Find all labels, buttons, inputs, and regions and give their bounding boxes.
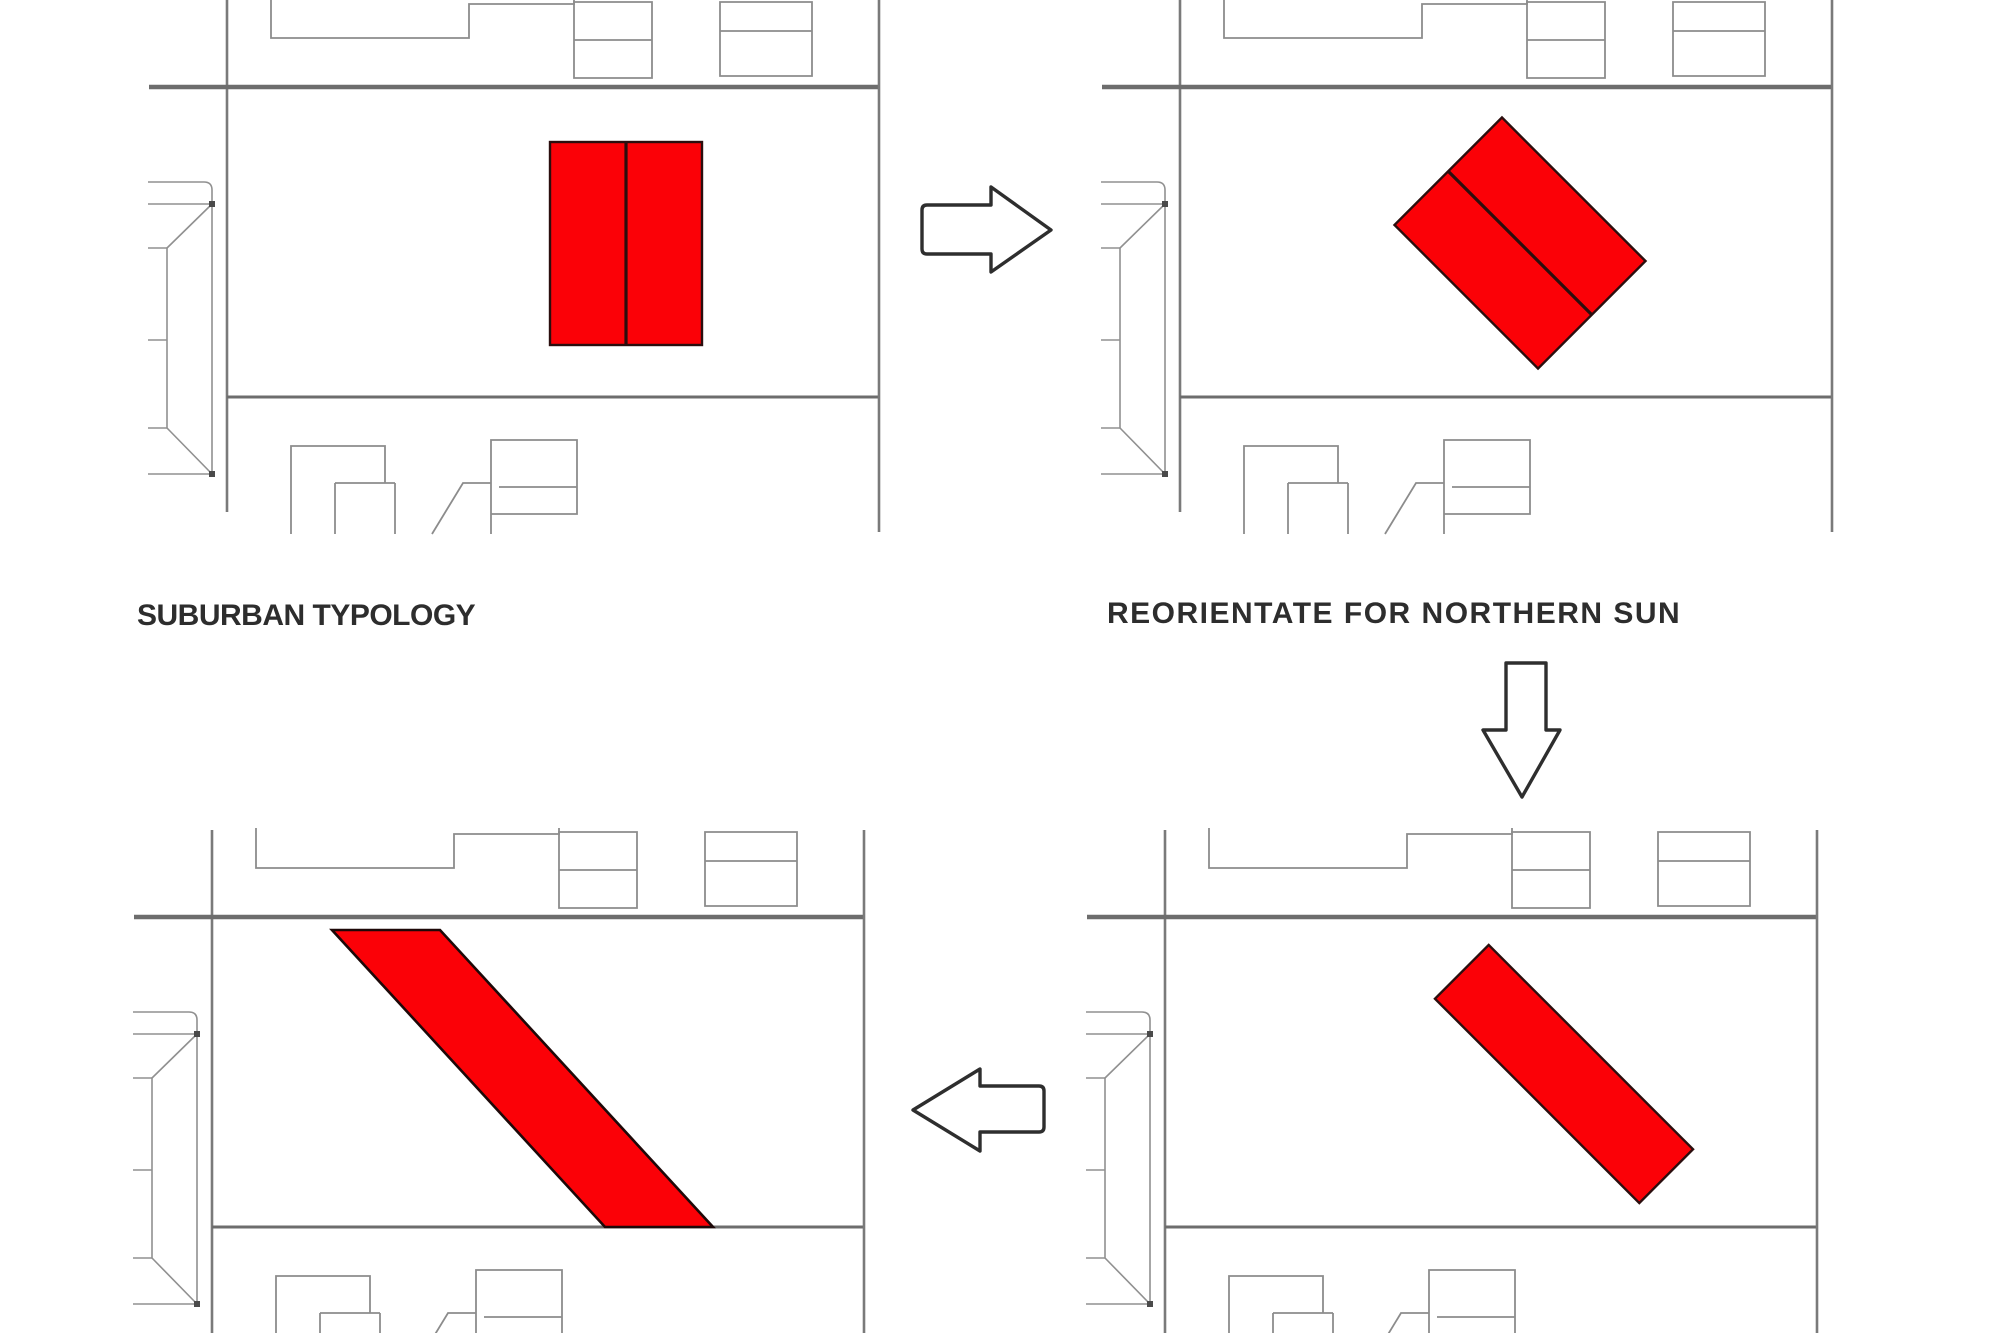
caption-suburban-typology: SUBURBAN TYPOLOGY bbox=[137, 601, 475, 631]
building-footprint-rotated bbox=[1394, 117, 1645, 368]
arrow-right-icon bbox=[922, 187, 1051, 272]
building-footprint-thin-rotated bbox=[1435, 945, 1693, 1203]
building-footprint-extended bbox=[332, 930, 713, 1227]
site-plan-top-left bbox=[148, 0, 879, 534]
typology-diagram: SUBURBAN TYPOLOGY REORIENTATE FOR NORTHE… bbox=[0, 0, 2000, 1333]
site-plan-bottom-right bbox=[1086, 828, 1817, 1333]
arrow-left-icon bbox=[913, 1069, 1044, 1151]
diagram-canvas bbox=[0, 0, 2000, 1333]
caption-reorientate: REORIENTATE FOR NORTHERN SUN bbox=[1107, 599, 1681, 629]
arrow-down-icon bbox=[1483, 663, 1560, 797]
building-footprint-original bbox=[550, 142, 702, 345]
